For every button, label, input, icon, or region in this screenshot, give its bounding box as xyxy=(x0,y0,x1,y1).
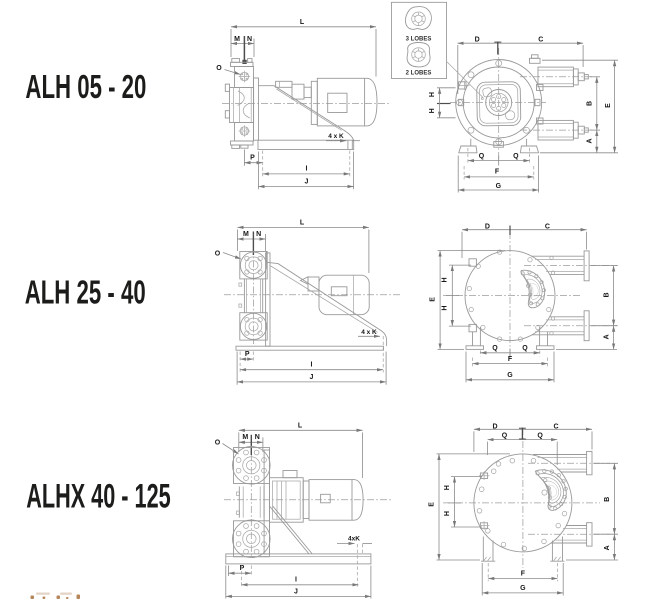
svg-text:G: G xyxy=(496,183,502,190)
svg-text:D: D xyxy=(492,423,497,430)
svg-text:H: H xyxy=(444,511,451,516)
svg-text:H: H xyxy=(429,92,436,97)
svg-text:F: F xyxy=(508,356,513,363)
svg-text:Q: Q xyxy=(537,433,543,440)
svg-text:G: G xyxy=(507,372,513,379)
svg-text:H: H xyxy=(442,306,449,311)
svg-text:J: J xyxy=(294,589,298,596)
svg-text:L: L xyxy=(298,423,303,430)
svg-text:Q: Q xyxy=(522,345,528,352)
svg-text:C: C xyxy=(553,423,558,430)
svg-text:N: N xyxy=(247,36,252,43)
svg-text:F: F xyxy=(521,570,526,577)
svg-text:C: C xyxy=(545,224,550,231)
svg-text:M: M xyxy=(242,434,248,441)
svg-text:4 x K: 4 x K xyxy=(328,133,344,140)
svg-text:F: F xyxy=(495,169,500,176)
svg-text:P: P xyxy=(245,351,250,358)
svg-text:ALHX 40 - 125: ALHX 40 - 125 xyxy=(26,477,171,515)
svg-text:L: L xyxy=(300,19,305,26)
svg-text:M: M xyxy=(234,36,240,43)
svg-text:P: P xyxy=(240,565,245,572)
svg-text:Q: Q xyxy=(513,153,519,160)
svg-text:M: M xyxy=(243,231,249,238)
svg-text:A: A xyxy=(604,545,611,550)
svg-text:N: N xyxy=(255,434,260,441)
svg-text:H: H xyxy=(429,108,436,113)
svg-text:H: H xyxy=(442,277,449,282)
svg-text:E: E xyxy=(430,297,437,302)
svg-text:I: I xyxy=(311,362,313,369)
svg-text:2 LOBES: 2 LOBES xyxy=(406,71,432,77)
svg-text:D: D xyxy=(475,36,480,43)
svg-text:H: H xyxy=(444,485,451,490)
svg-text:I: I xyxy=(295,577,297,584)
svg-text:B: B xyxy=(603,292,610,297)
svg-text:3 LOBES: 3 LOBES xyxy=(406,36,432,42)
svg-text:A: A xyxy=(603,334,610,339)
svg-text:ALH 05 - 20: ALH 05 - 20 xyxy=(25,69,146,106)
svg-text:ALH 25 - 40: ALH 25 - 40 xyxy=(25,274,146,311)
svg-text:O: O xyxy=(216,65,222,72)
svg-text:J: J xyxy=(310,374,314,381)
svg-text:A: A xyxy=(587,138,594,143)
svg-text:Q: Q xyxy=(479,153,485,160)
svg-text:E: E xyxy=(429,502,436,507)
svg-text:4xK: 4xK xyxy=(348,536,360,543)
svg-text:D: D xyxy=(485,224,490,231)
svg-text:L: L xyxy=(300,220,305,227)
svg-text:G: G xyxy=(520,585,526,592)
svg-text:E: E xyxy=(605,103,612,108)
svg-text:Q: Q xyxy=(492,345,498,352)
svg-text:O: O xyxy=(215,440,221,447)
svg-text:C: C xyxy=(538,36,543,43)
svg-text:B: B xyxy=(604,497,611,502)
svg-text:N: N xyxy=(256,231,261,238)
svg-text:Q: Q xyxy=(502,433,508,440)
svg-text:J: J xyxy=(305,178,309,185)
svg-text:4 x K: 4 x K xyxy=(361,329,377,336)
svg-text:I: I xyxy=(306,166,308,173)
svg-text:O: O xyxy=(215,251,221,258)
svg-text:P: P xyxy=(250,155,255,162)
svg-text:B: B xyxy=(587,101,594,106)
